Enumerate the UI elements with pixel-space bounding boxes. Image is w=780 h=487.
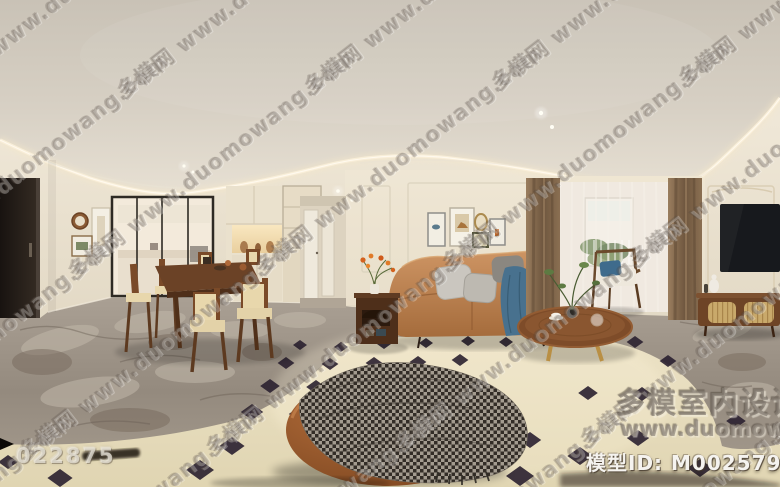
drape-left [526, 178, 560, 318]
render-id-text: 022875 [16, 444, 116, 468]
window-curtains [526, 176, 702, 320]
hallway [300, 196, 346, 308]
model-id-text: 模型ID: M0025791 [586, 447, 780, 476]
drape-right [668, 178, 702, 320]
tv-console [695, 293, 780, 340]
brand-title: 多模室内设计 [616, 380, 780, 422]
panorama-image: 多模网 www.duomowang.com多模网 www.duomowang.c… [0, 0, 780, 487]
brand-website: www.duomowang.com [620, 417, 780, 441]
